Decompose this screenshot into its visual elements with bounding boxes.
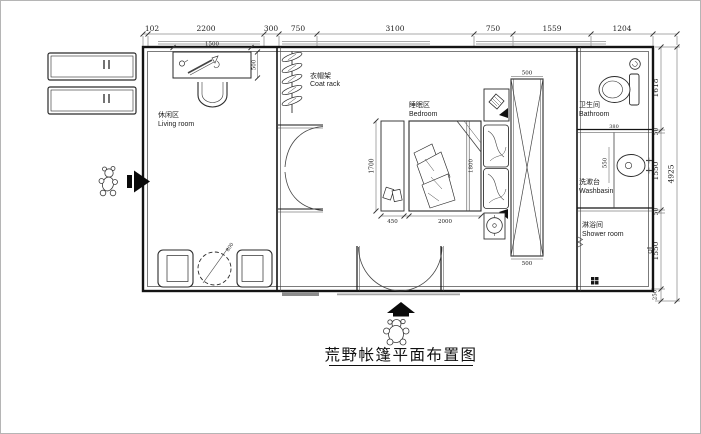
- shower-label-zh: 淋浴间: [582, 220, 603, 229]
- dim-bed-length: 1700: [369, 158, 376, 173]
- curtain-door: [278, 125, 323, 212]
- dim-top-1204: 1204: [612, 24, 631, 33]
- dim-top-102: 102: [145, 24, 160, 33]
- bedside-rug: [381, 121, 404, 211]
- dim-wardrobe-top: 500: [522, 71, 533, 77]
- title-text: 荒野帐篷平面布置图: [324, 345, 477, 364]
- bedside-stool: [484, 209, 508, 239]
- shower-label-en: Shower room: [582, 231, 624, 238]
- dim-bed-width: 2000: [438, 219, 452, 225]
- washbasin-area: 550 洗漱台 Washbasin: [579, 147, 652, 195]
- dim-top-750a: 750: [291, 24, 306, 33]
- dim-bathroom: 380: [609, 124, 619, 130]
- entry-arrow-right-icon: [127, 171, 150, 193]
- top-edge-bars: [158, 42, 606, 45]
- washbasin-label-zh: 洗漱台: [579, 177, 600, 186]
- dim-table-diameter: 800: [225, 242, 235, 253]
- coat-rack-label-zh: 衣帽架: [310, 71, 331, 80]
- floor-drain-icon: [591, 277, 599, 285]
- bathroom-label-en: Bathroom: [579, 111, 610, 118]
- seating-group: 800: [158, 242, 272, 287]
- washbasin-label-en: Washbasin: [579, 188, 613, 195]
- coat-rack: 衣帽架 Coat rack: [281, 51, 340, 113]
- dim-washbasin: 550: [603, 157, 609, 168]
- partition-wall-living-bedroom: [277, 47, 281, 291]
- shower-room: 淋浴间 Shower room: [578, 220, 653, 285]
- right-dimension-chain: 1618 50 1550 50 1550 250 4925: [651, 45, 680, 304]
- floor-plan-drawing: 102 2200 300 750 3100 750 1559 1204 1618…: [1, 1, 701, 434]
- bathroom: 卫生间 Bathroom 380: [579, 59, 640, 130]
- light-fixture-icon: [630, 59, 641, 70]
- floor-plan-sheet: 102 2200 300 750 3100 750 1559 1204 1618…: [0, 0, 701, 434]
- bedside-table: [484, 89, 509, 121]
- dim-top-750b: 750: [486, 24, 501, 33]
- living-room-desk: 1500 500: [171, 42, 261, 81]
- dim-wardrobe-bottom: 500: [522, 261, 533, 267]
- living-room-label: 休闲区 Living room: [158, 110, 194, 128]
- bedroom-label-en: Bedroom: [409, 111, 438, 118]
- living-room-label-zh: 休闲区: [158, 110, 179, 119]
- dim-top-1559: 1559: [542, 24, 561, 33]
- bottom-entrance-marker: [384, 302, 416, 345]
- dim-bed-rug: 450: [387, 219, 398, 225]
- sun-loungers: [48, 53, 136, 114]
- dim-top-2200: 2200: [196, 24, 215, 33]
- dim-desk-width: 1500: [205, 42, 219, 48]
- dim-top-3100: 3100: [385, 24, 404, 33]
- bed-pillows: [484, 125, 509, 209]
- entry-arrow-up-icon: [387, 302, 415, 317]
- bear-figure-icon: [384, 319, 410, 345]
- dim-bed-inner: 1800: [469, 159, 475, 173]
- wardrobe: 500 500: [511, 71, 543, 268]
- living-room-label-en: Living room: [158, 121, 194, 128]
- double-door: [357, 246, 444, 291]
- dim-top-300: 300: [264, 24, 279, 33]
- dim-right-total-4925: 4925: [667, 164, 676, 183]
- bear-figure-icon: [99, 167, 118, 196]
- coat-rack-label-en: Coat rack: [310, 81, 340, 88]
- dim-desk-depth: 500: [252, 59, 258, 70]
- bedroom-label-zh: 睡眠区: [409, 101, 430, 109]
- desk-chair: [198, 82, 227, 107]
- bathroom-label-zh: 卫生间: [579, 100, 600, 109]
- bedroom-label: 睡眠区 Bedroom: [409, 101, 438, 118]
- door-mat: [282, 293, 319, 297]
- drawing-title: 荒野帐篷平面布置图: [324, 345, 477, 366]
